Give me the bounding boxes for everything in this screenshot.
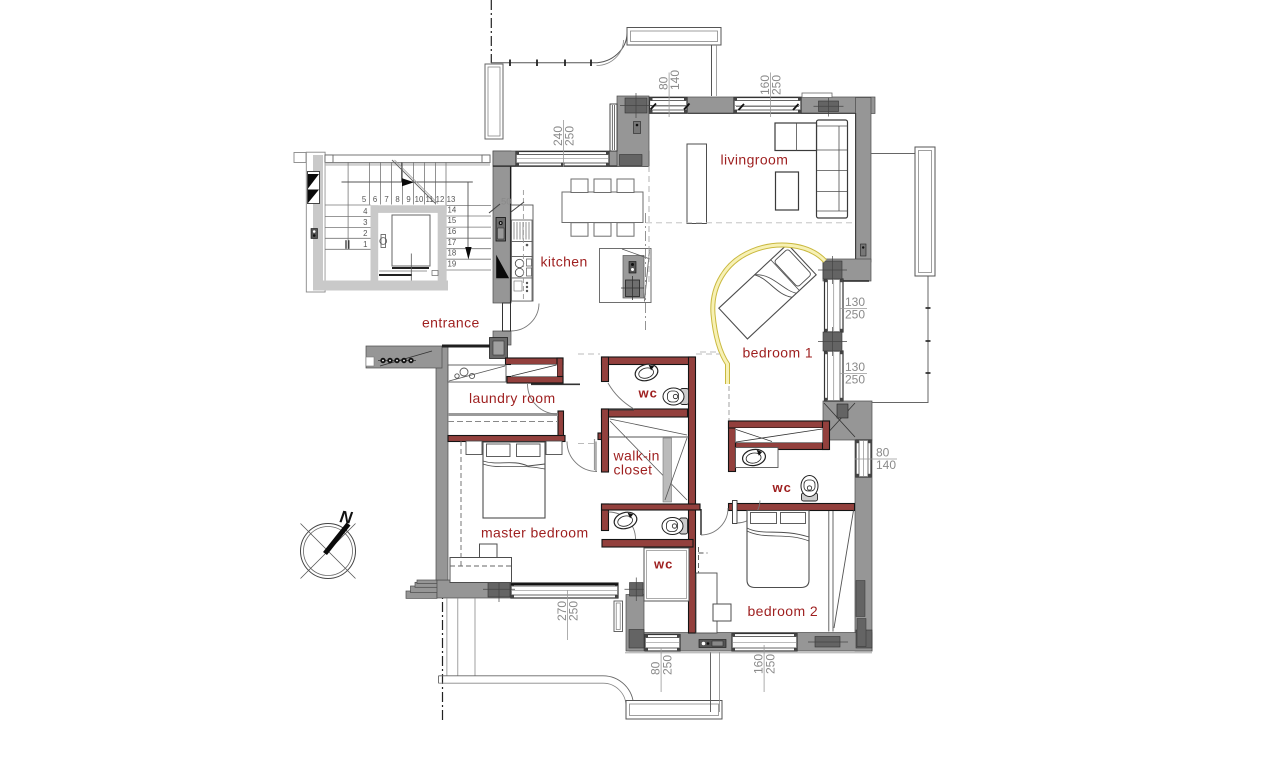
svg-text:3: 3 <box>363 218 367 227</box>
svg-text:master bedroom: master bedroom <box>481 525 589 541</box>
svg-text:11: 11 <box>425 195 433 204</box>
svg-text:6: 6 <box>373 195 377 204</box>
svg-text:50: 50 <box>501 197 512 208</box>
svg-text:16: 16 <box>448 227 457 236</box>
svg-text:250: 250 <box>845 373 865 387</box>
svg-text:9: 9 <box>406 195 410 204</box>
svg-text:250: 250 <box>764 654 778 674</box>
svg-text:19: 19 <box>448 259 457 268</box>
svg-text:250: 250 <box>661 655 675 675</box>
svg-text:1: 1 <box>363 240 367 249</box>
svg-text:wc: wc <box>772 480 792 495</box>
svg-text:livingroom: livingroom <box>721 152 789 168</box>
svg-text:250: 250 <box>845 308 865 322</box>
svg-text:250: 250 <box>563 126 577 146</box>
svg-text:kitchen: kitchen <box>541 254 588 270</box>
svg-text:140: 140 <box>668 70 682 90</box>
svg-text:entrance: entrance <box>422 315 480 331</box>
svg-text:2: 2 <box>363 229 367 238</box>
svg-text:15: 15 <box>448 216 457 225</box>
svg-text:18: 18 <box>448 248 457 257</box>
svg-text:5: 5 <box>362 195 367 204</box>
svg-text:17: 17 <box>448 238 457 247</box>
svg-text:bedroom 2: bedroom 2 <box>748 603 819 619</box>
svg-text:closet: closet <box>614 462 653 478</box>
svg-text:laundry room: laundry room <box>469 390 556 406</box>
svg-text:7: 7 <box>384 195 388 204</box>
svg-text:140: 140 <box>876 458 896 472</box>
svg-text:bedroom 1: bedroom 1 <box>743 345 814 361</box>
svg-text:8: 8 <box>395 195 399 204</box>
svg-text:4: 4 <box>363 207 368 216</box>
svg-text:14: 14 <box>448 206 457 215</box>
svg-text:10: 10 <box>415 195 424 204</box>
svg-text:250: 250 <box>567 601 581 621</box>
svg-text:250: 250 <box>770 75 784 95</box>
svg-text:wc: wc <box>653 557 673 572</box>
svg-text:13: 13 <box>447 195 456 204</box>
svg-text:wc: wc <box>638 386 658 401</box>
